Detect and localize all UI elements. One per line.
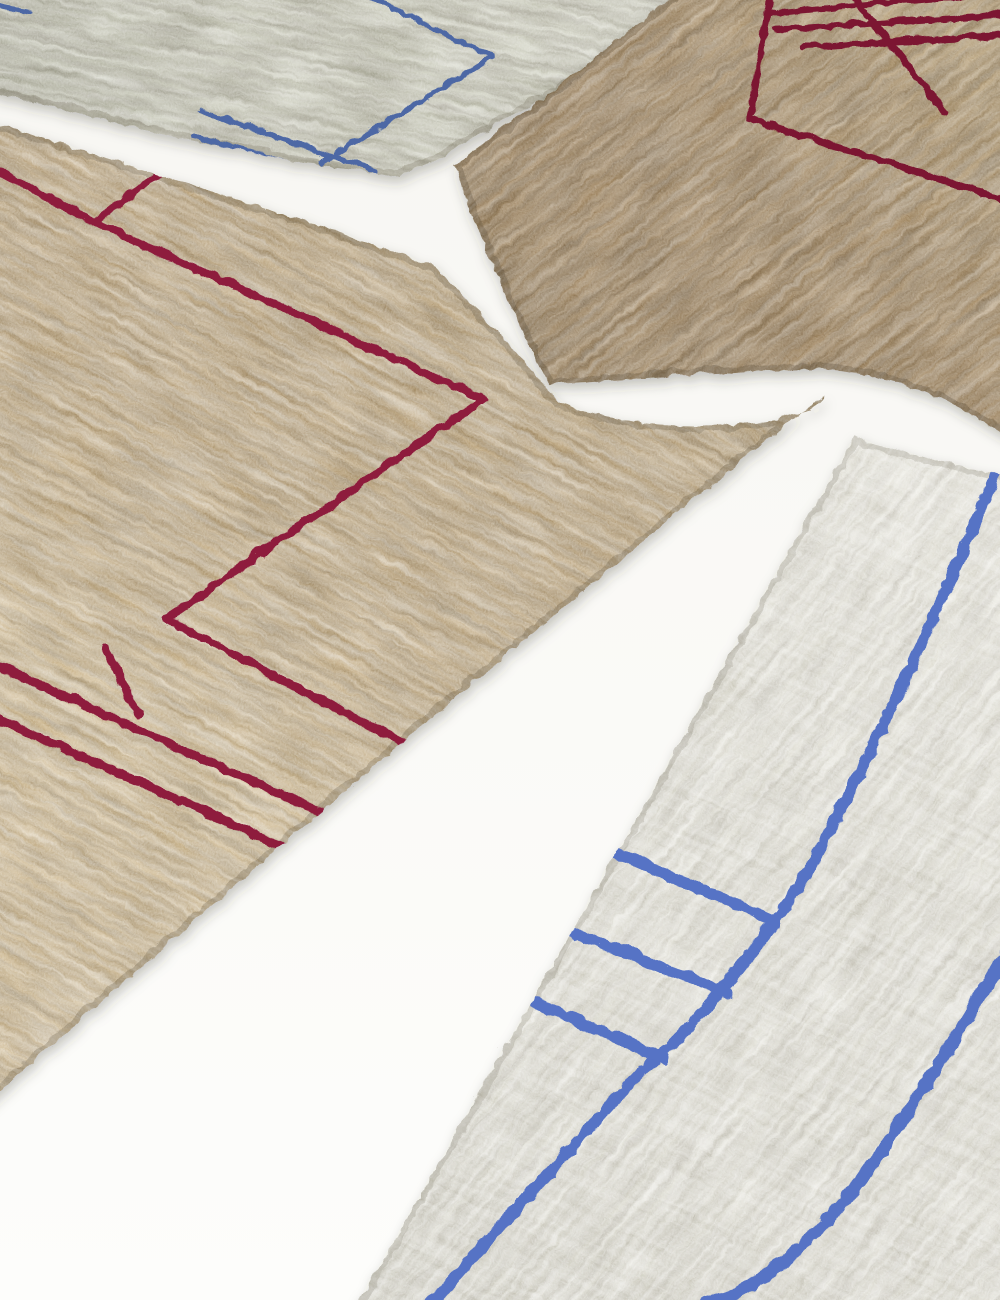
rug-collection-photo	[0, 0, 1000, 1300]
rug-scene	[0, 0, 1000, 1300]
